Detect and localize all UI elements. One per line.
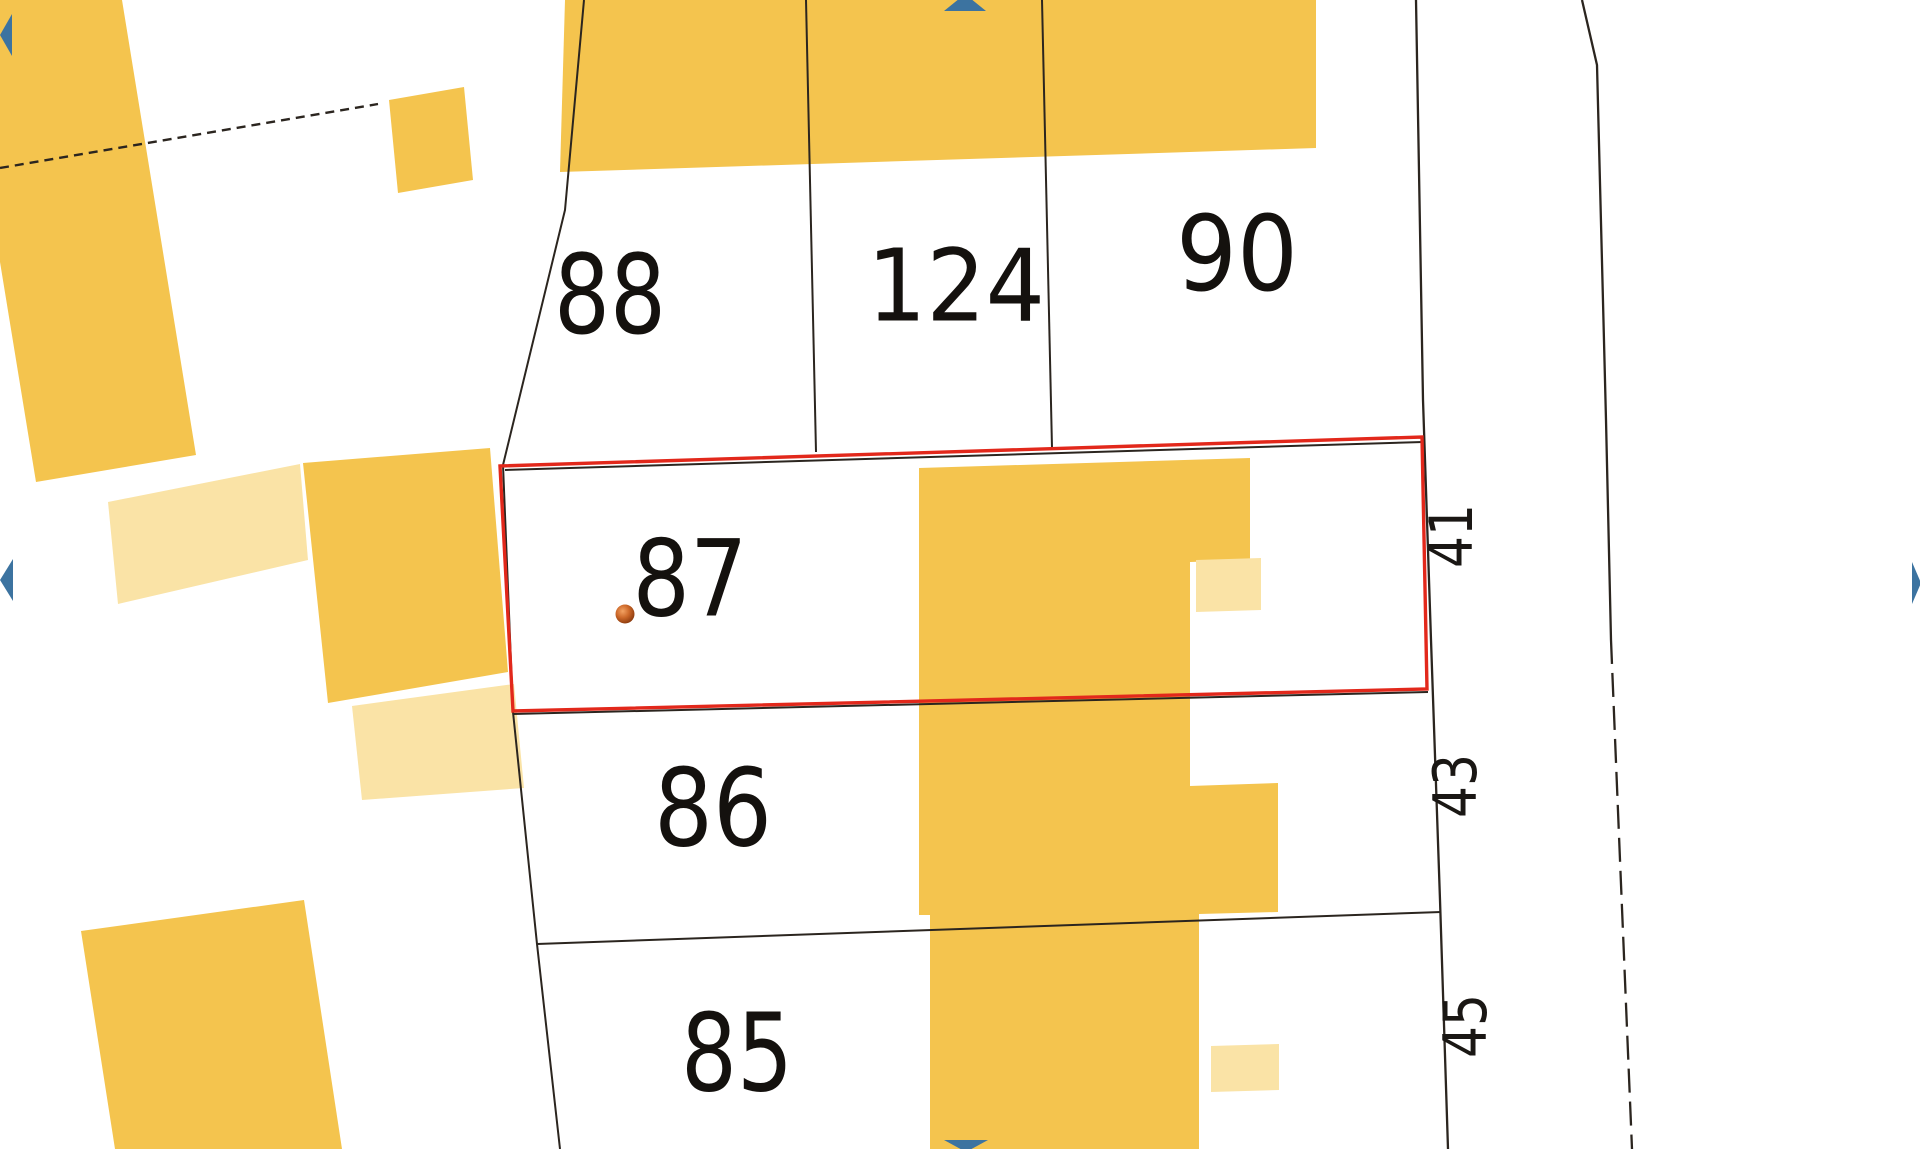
building-top-left — [0, 0, 196, 482]
boundary-left-parcels — [503, 0, 584, 1149]
building-annex-left-light — [108, 464, 308, 604]
map-viewport[interactable]: 8812490878685414345 — [0, 0, 1920, 1149]
cadastral-map[interactable]: 8812490878685414345 — [0, 0, 1920, 1149]
street-number-45: 45 — [1431, 994, 1501, 1058]
building-annex-mid-light — [352, 684, 524, 800]
marker-layer — [616, 605, 635, 624]
building-bottom-annex-light — [1211, 1044, 1279, 1092]
street-number-43: 43 — [1421, 754, 1491, 818]
address-point-marker — [616, 605, 635, 624]
road-edge-solid — [1582, 0, 1611, 640]
boundary-parcel87-top — [505, 442, 1423, 470]
pan-right-arrow[interactable] — [1912, 562, 1920, 604]
parcel-label-124: 124 — [867, 228, 1045, 345]
parcel-label-88: 88 — [554, 231, 666, 359]
parcel-label-85: 85 — [681, 992, 793, 1117]
road-edge-dashed — [1611, 640, 1632, 1149]
boundary-street-west — [1416, 0, 1448, 1149]
building-bottom-left — [81, 900, 342, 1149]
parcel-label-90: 90 — [1176, 193, 1298, 315]
building-small-square — [389, 87, 473, 193]
street-number-41: 41 — [1417, 504, 1487, 568]
building-top-band — [560, 0, 1316, 172]
building-mid-left — [303, 448, 508, 703]
parcel-label-86: 86 — [654, 747, 772, 872]
pan-left-arrow[interactable] — [0, 559, 13, 601]
building-central-annex-light — [1196, 558, 1261, 612]
parcel-label-87: 87 — [633, 518, 748, 641]
